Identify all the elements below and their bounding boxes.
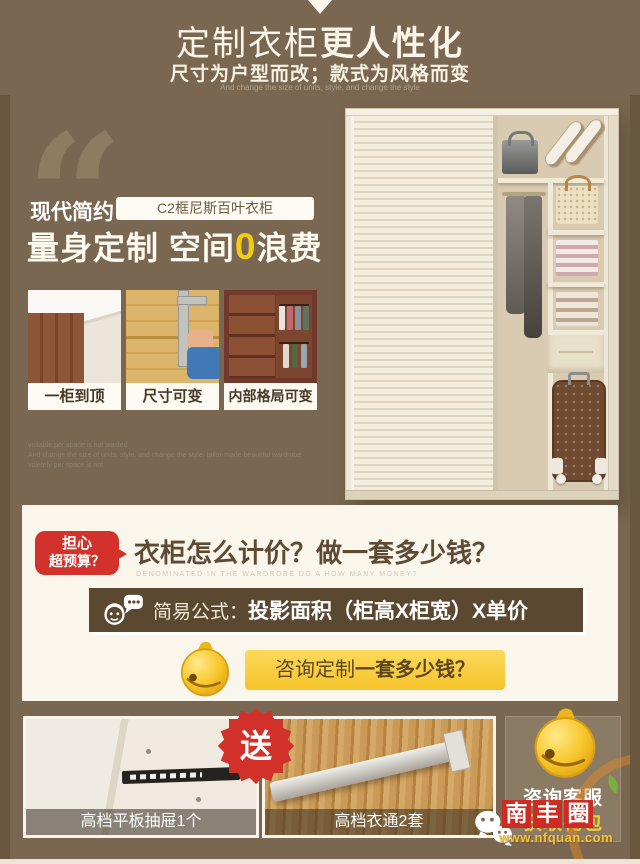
- bell-icon: [526, 705, 604, 781]
- suitcase-wheel-art: [556, 474, 566, 484]
- worry-budget-badge: 担心 超预算？: [35, 531, 119, 575]
- clothes-art: [279, 306, 285, 330]
- shelf-art: [548, 230, 604, 235]
- hero-headline: 量身定制 空间0浪费: [27, 223, 323, 269]
- clothes-art: [292, 344, 298, 368]
- feature-card-layout: 内部格局可变: [224, 290, 317, 410]
- clothes-art: [283, 344, 289, 368]
- page-title-bold: 更人性化: [320, 25, 464, 63]
- consult-pre: 咨询定制: [275, 659, 355, 681]
- consult-bold: 一套多少钱？: [355, 659, 475, 681]
- left-frame-border: [0, 95, 10, 864]
- gift-label-drawer: 高档平板抽屉1个: [26, 809, 256, 835]
- bell-icon: [174, 639, 236, 699]
- hanging-clothes-art: [506, 196, 526, 314]
- folded-clothes-art: [556, 240, 598, 276]
- feature-photo-ceiling: [28, 290, 121, 383]
- wardrobe-top-art: [28, 313, 84, 383]
- gift-photo-rod: 高档衣通2套: [262, 716, 496, 838]
- formula-label: 简易公式：: [153, 597, 248, 624]
- hero-watermark-line: voitable per space is not wasted: [28, 441, 301, 451]
- ruler-arm-art: [177, 296, 207, 305]
- wardrobe-side-panel: [608, 116, 618, 491]
- feature-card-ceiling: 一柜到顶: [28, 290, 121, 410]
- badge-line2: 超预算？: [35, 553, 119, 569]
- suitcase-art: [552, 380, 606, 482]
- feature-list: 一柜到顶 尺寸可变: [28, 290, 317, 410]
- feature-label: 尺寸可变: [126, 383, 219, 410]
- pricing-question-en: DENOMINATED IN THE WARDROBE DO A HOW MAN…: [136, 571, 418, 578]
- wardrobe-top-trim: [346, 109, 618, 116]
- feature-photo-layout: [224, 290, 317, 383]
- consult-price-button[interactable]: 咨询定制一套多少钱？: [245, 650, 505, 690]
- watermark-url: www.nfquan.com: [499, 830, 613, 845]
- bottom-edge-strip: [0, 859, 640, 864]
- customer-service-icon: [101, 593, 145, 627]
- formula-bar: 简易公式：投影面积（柜高X柜宽）X单价: [89, 588, 583, 632]
- nfquan-logo: 南 丰 圈: [502, 800, 593, 828]
- feature-card-size: 尺寸可变: [126, 290, 219, 410]
- page-subtitle: 尺寸为户型而改；款式为风格而变: [0, 59, 640, 86]
- logo-char: 丰: [533, 800, 562, 828]
- feature-photo-size: [126, 290, 219, 383]
- gift-label-rod: 高档衣通2套: [265, 809, 493, 835]
- page-title: 定制衣柜更人性化: [0, 16, 640, 65]
- clothes-art: [295, 306, 301, 330]
- bag-art: [502, 140, 538, 174]
- quote-icon: “: [26, 112, 136, 204]
- wardrobe-drawer-art: [548, 330, 604, 373]
- sleeve-art: [187, 347, 219, 379]
- feature-label: 一柜到顶: [28, 383, 121, 410]
- wardrobe-open-section: [498, 116, 604, 491]
- right-frame-border: [630, 95, 640, 864]
- folded-clothes-art: [556, 292, 598, 326]
- free-gift-text: 送: [216, 706, 296, 786]
- promo-page: 定制衣柜更人性化 尺寸为户型而改；款式为风格而变 And change the …: [0, 0, 640, 864]
- logo-char: 圈: [564, 800, 593, 828]
- screw-art: [196, 797, 201, 802]
- wardrobe-photo: [345, 108, 619, 500]
- clothes-art: [287, 306, 293, 330]
- suitcase-wheel-art: [592, 474, 602, 484]
- product-tag-pill[interactable]: C2框尼斯百叶衣柜: [116, 197, 314, 220]
- hero-watermark-line: voletely per space is not: [28, 461, 301, 471]
- wardrobe-bottom-rail: [346, 490, 618, 499]
- hero-headline-post: 浪费: [256, 230, 322, 266]
- pricing-section: 担心 超预算？ 衣柜怎么计价？做一套多少钱？ DENOMINATED IN TH…: [22, 505, 618, 701]
- wardrobe-louver-door: [351, 116, 498, 491]
- basket-art: [556, 186, 598, 224]
- clothes-art: [301, 344, 307, 368]
- hero-watermark-text: voitable per space is not wasted And cha…: [28, 441, 301, 471]
- closet-shelves-art: [229, 295, 275, 378]
- pricing-question: 衣柜怎么计价？做一套多少钱？: [134, 533, 498, 570]
- logo-char: 南: [502, 800, 531, 828]
- hero-watermark-line: And change the size of units, style, and…: [28, 451, 301, 461]
- feature-label: 内部格局可变: [224, 383, 317, 410]
- page-subtitle-en: And change the size of units, style, and…: [0, 83, 640, 92]
- badge-line1: 担心: [35, 535, 119, 553]
- page-title-regular: 定制衣柜: [176, 25, 320, 63]
- hanging-clothes-art: [524, 196, 542, 338]
- down-arrow-icon: [308, 0, 332, 14]
- screw-art: [146, 749, 151, 754]
- hero-headline-pre: 量身定制 空间: [27, 230, 235, 266]
- suitcase-corner-art: [551, 458, 563, 474]
- hero-headline-zero: 0: [235, 226, 257, 267]
- shelf-art: [548, 282, 604, 287]
- clothes-art: [303, 306, 309, 330]
- style-label: 现代简约: [30, 196, 114, 226]
- formula-value: 投影面积（柜高X柜宽）X单价: [248, 595, 528, 625]
- suitcase-corner-art: [595, 458, 607, 474]
- closet-rod-photo-art: [269, 740, 461, 803]
- free-gift-badge: 送: [216, 706, 296, 786]
